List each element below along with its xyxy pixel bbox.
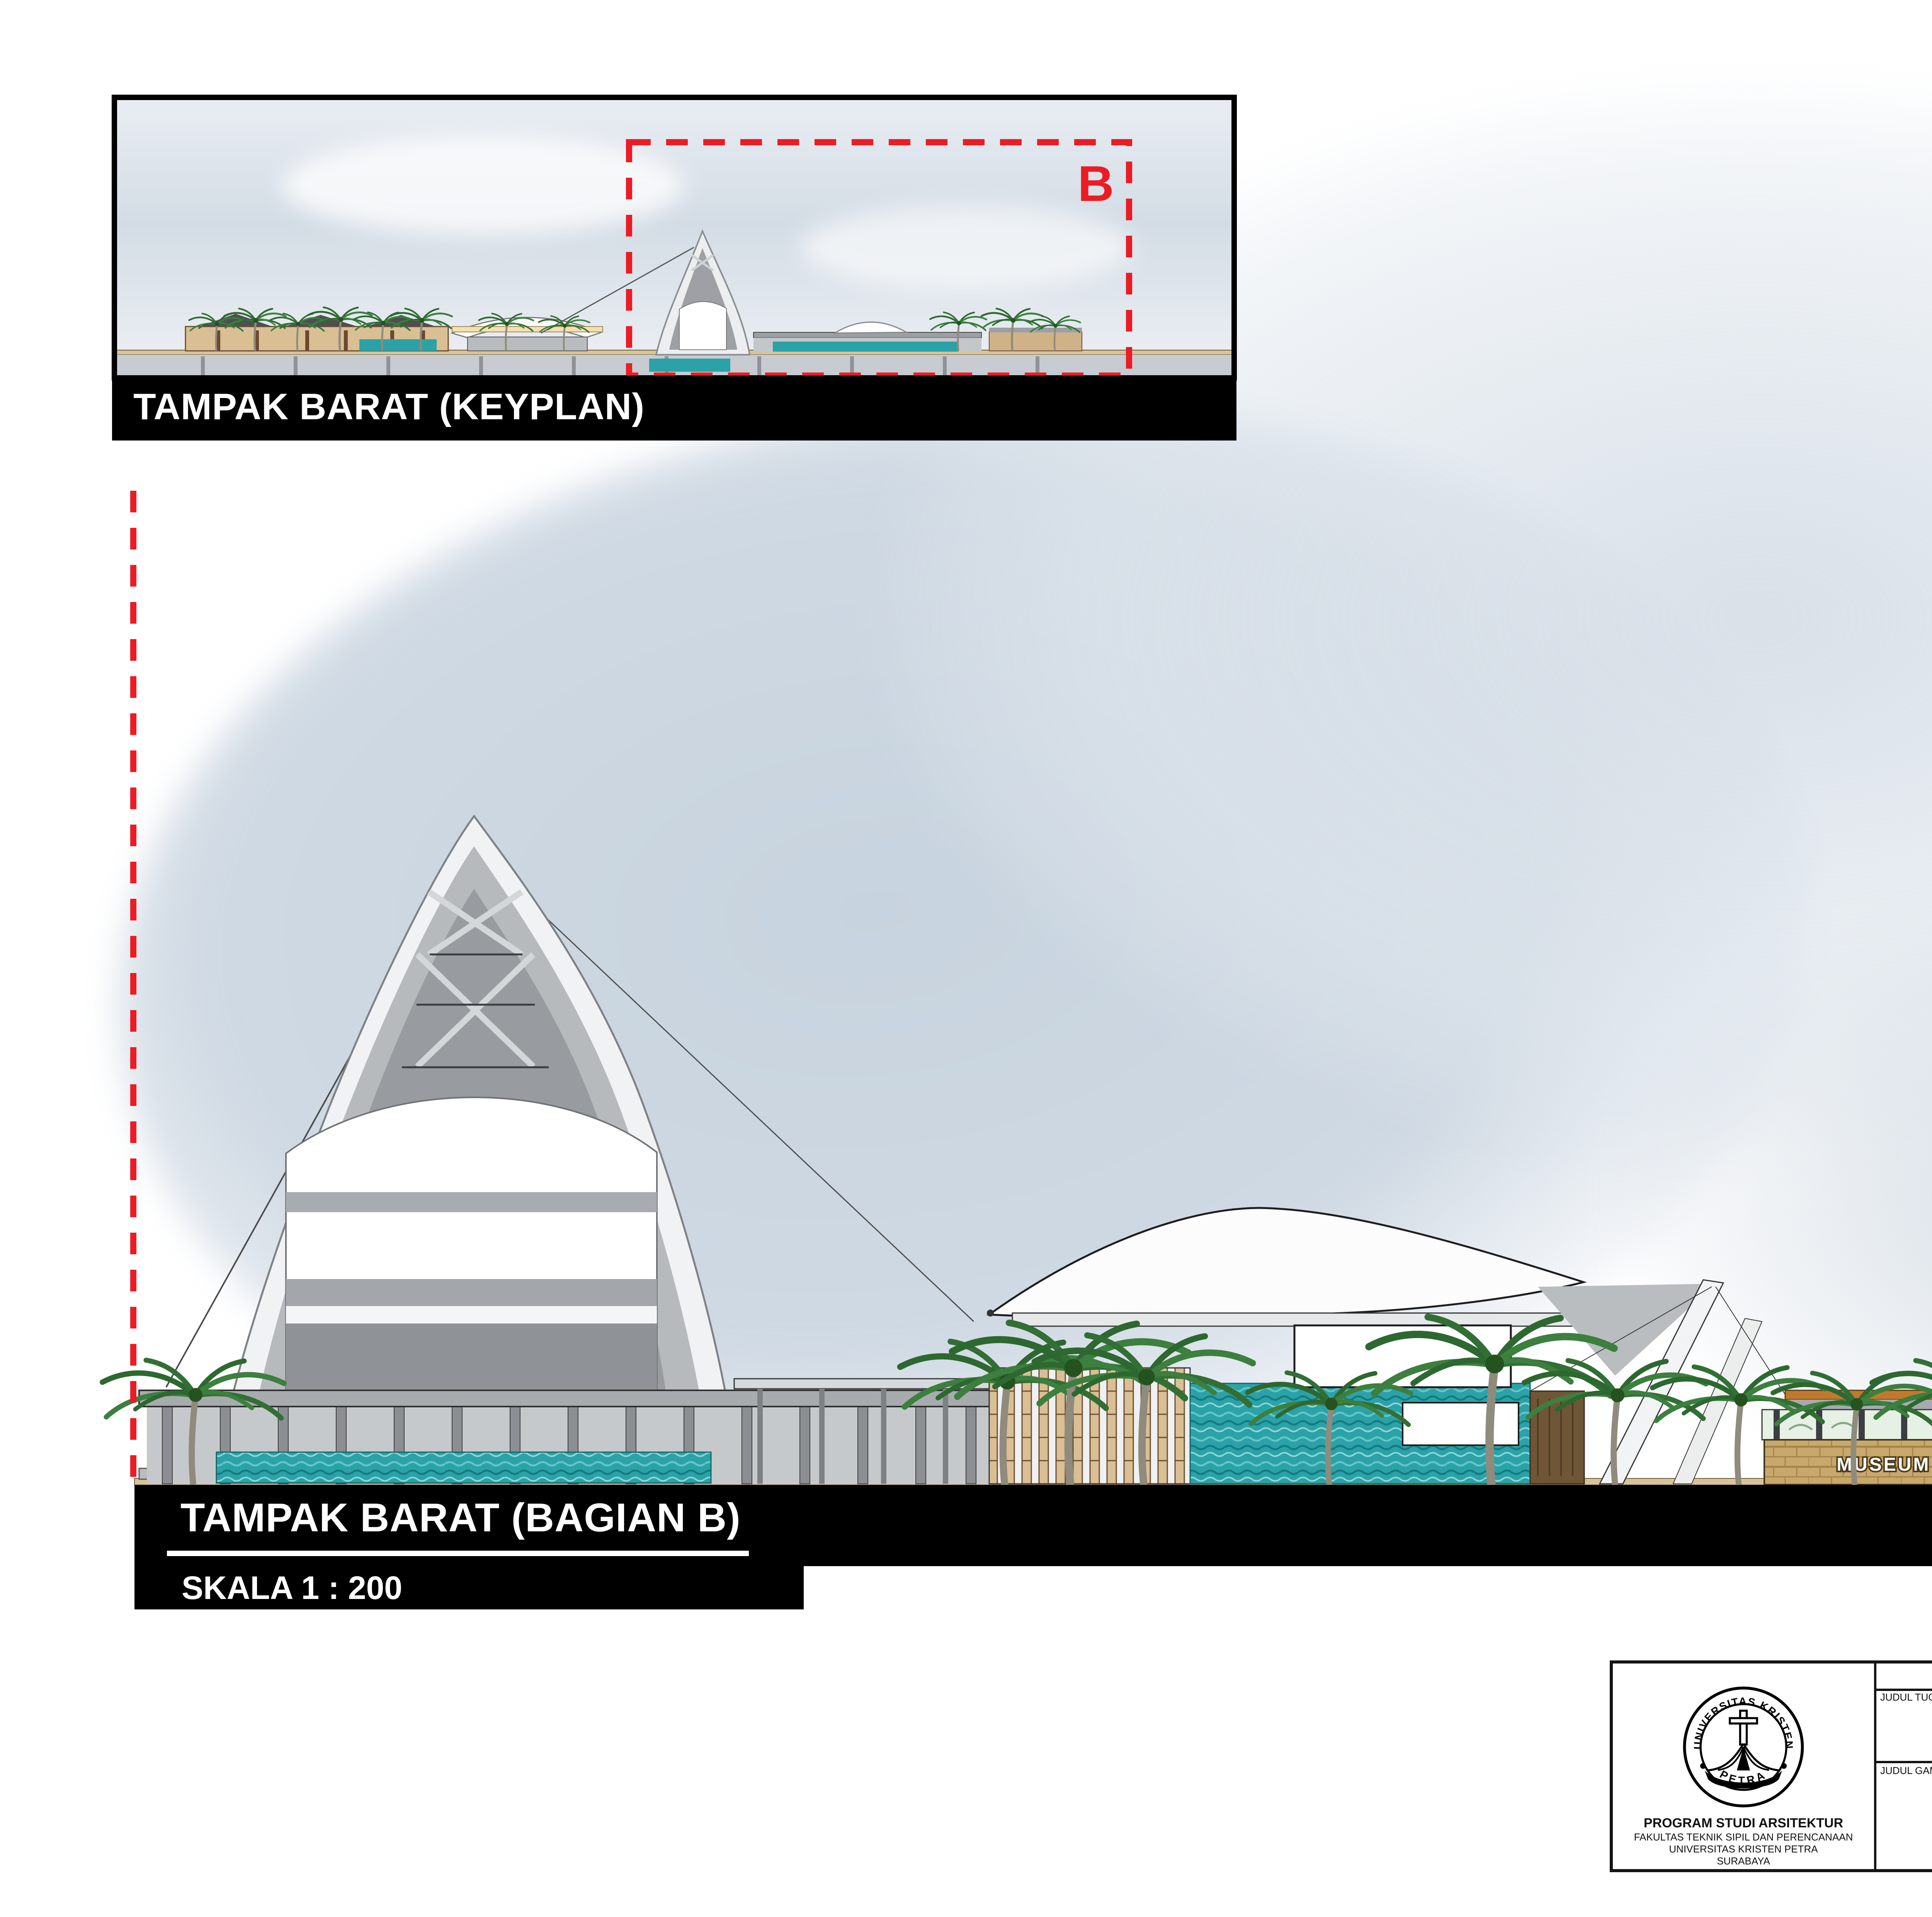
project-title-line1: FASILITAS EDUWISATA NELAYAN bbox=[1874, 1701, 1932, 1726]
department-line3: UNIVERSITAS KRISTEN PETRA bbox=[1617, 1843, 1870, 1855]
tent-building bbox=[987, 1208, 1584, 1484]
sail-building bbox=[166, 816, 974, 1398]
department-line1: PROGRAM STUDI ARSITEKTUR bbox=[1617, 1815, 1870, 1831]
title-block: UNIVERSITAS KRISTEN PETRA PROGRAM STUDI … bbox=[1610, 1660, 1932, 1872]
elevation-artwork: B bbox=[0, 0, 1932, 1917]
section-b-marker: B bbox=[1078, 155, 1114, 212]
keyplan-label-bar: TAMPAK BARAT (KEYPLAN) bbox=[112, 376, 1236, 441]
department-block: PROGRAM STUDI ARSITEKTUR FAKULTAS TEKNIK… bbox=[1617, 1815, 1870, 1867]
university-logo: UNIVERSITAS KRISTEN PETRA bbox=[1682, 1685, 1805, 1809]
scale-label: SKALA 1 : 200 bbox=[182, 1569, 402, 1607]
project-header: TUGAS AKHIR - SEMESTER GENAP 2016/2017 bbox=[1874, 1664, 1932, 1689]
project-title-line2: DI KENJERAN, SURABAYA bbox=[1874, 1728, 1932, 1754]
drawing-title-value: TAMPAK BARAT (BAGIAN B) bbox=[1874, 1761, 1932, 1869]
department-line4: SURABAYA bbox=[1617, 1855, 1870, 1867]
keyplan-title: TAMPAK BARAT (KEYPLAN) bbox=[133, 386, 645, 428]
drawing-sheet: B bbox=[0, 0, 1932, 1917]
scale-label-bar: SKALA 1 : 200 bbox=[134, 1566, 804, 1609]
keyplan-drawing: B bbox=[114, 97, 1234, 378]
main-drawing-title: TAMPAK BARAT (BAGIAN B) bbox=[180, 1495, 741, 1541]
reflecting-pool bbox=[216, 1452, 711, 1483]
title-underline bbox=[167, 1551, 749, 1556]
department-line2: FAKULTAS TEKNIK SIPIL DAN PERENCANAAN bbox=[1617, 1831, 1870, 1843]
tb-divider bbox=[1874, 1689, 1932, 1691]
main-label-bar: TAMPAK BARAT (BAGIAN B) bbox=[134, 1485, 1932, 1566]
blank-signboard-lower bbox=[1403, 1403, 1519, 1445]
sail-platform bbox=[139, 1390, 993, 1484]
